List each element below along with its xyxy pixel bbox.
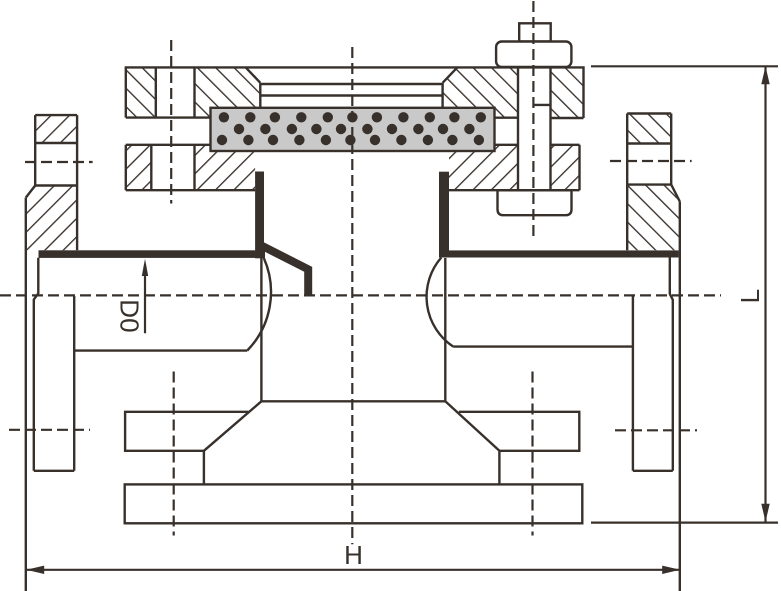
svg-text:H: H [344,540,363,570]
svg-text:D0: D0 [114,299,144,332]
svg-text:L: L [735,289,765,303]
